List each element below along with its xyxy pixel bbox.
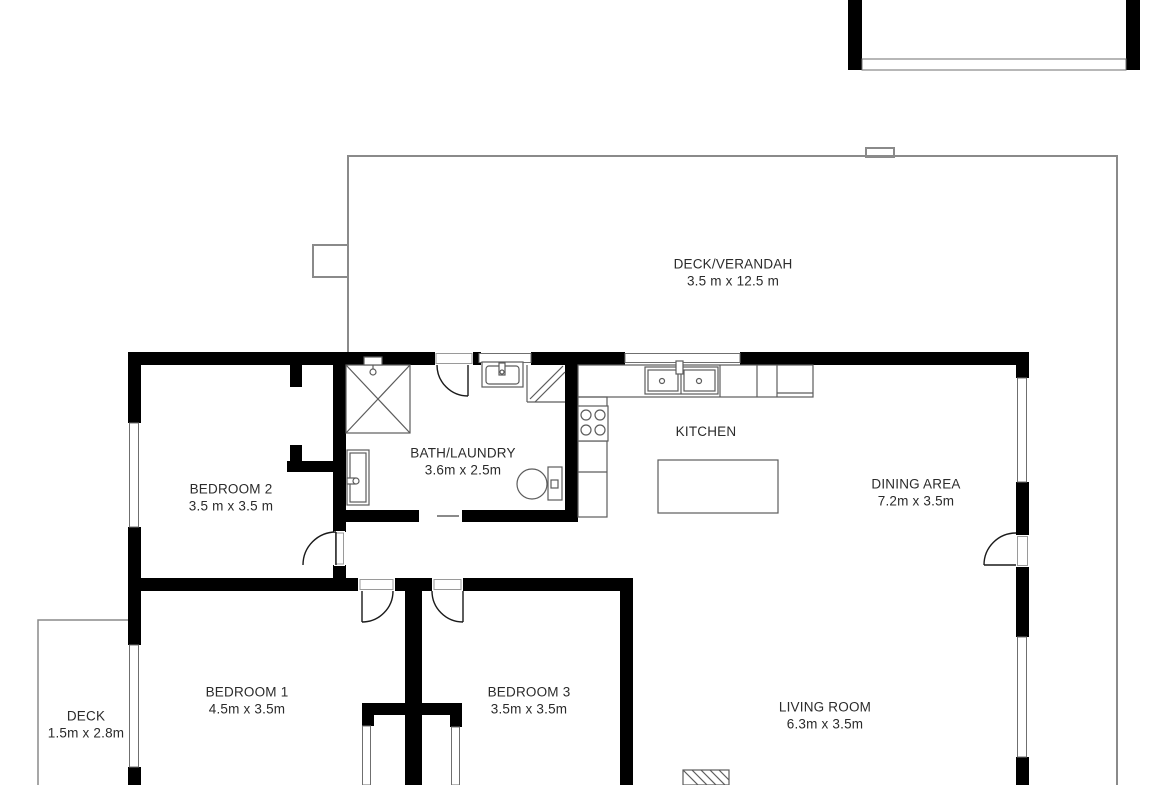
room-name: DECK (48, 709, 124, 726)
bath-entry-door (437, 365, 468, 396)
room-label-bedroom-1: BEDROOM 1 4.5m x 3.5m (206, 685, 289, 718)
room-label-kitchen: KITCHEN (676, 424, 737, 441)
room-dims: 3.5 m x 12.5 m (674, 273, 793, 290)
floor-plan-drawing (0, 0, 1170, 785)
dining-window (1018, 378, 1027, 482)
corner-unit (527, 365, 565, 402)
room-dims: 3.5m x 3.5m (488, 701, 571, 718)
room-name: BEDROOM 3 (488, 685, 571, 702)
bay-window-right (452, 727, 460, 785)
room-name: DINING AREA (871, 477, 960, 494)
verandah-post-box (313, 245, 348, 277)
garage-window (862, 59, 1126, 70)
bedroom1-window (130, 645, 139, 767)
bedroom2-door (303, 532, 336, 565)
room-dims: 1.5m x 2.8m (48, 725, 124, 742)
room-label-living: LIVING ROOM 6.3m x 3.5m (779, 700, 871, 733)
shower (346, 357, 410, 433)
bath-vanity (347, 450, 369, 505)
room-name: LIVING ROOM (779, 700, 871, 717)
deck-outline (38, 620, 128, 785)
room-label-deck-verandah: DECK/VERANDAH 3.5 m x 12.5 m (674, 257, 793, 290)
room-label-deck: DECK 1.5m x 2.8m (48, 709, 124, 742)
kitchen-island (658, 460, 778, 513)
hearth-hatch (683, 770, 729, 785)
dining-door (984, 533, 1016, 565)
bedroom2-window (130, 423, 139, 527)
room-dims: 3.6m x 2.5m (410, 462, 515, 479)
room-dims: 4.5m x 3.5m (206, 701, 289, 718)
bath-window (479, 354, 531, 363)
room-name: KITCHEN (676, 424, 737, 441)
room-name: DECK/VERANDAH (674, 257, 793, 274)
bath-basin (482, 362, 523, 387)
bedroom3-door (432, 591, 463, 622)
stove (578, 406, 608, 441)
bay-window-left (363, 726, 371, 785)
room-label-bedroom-3: BEDROOM 3 3.5m x 3.5m (488, 685, 571, 718)
room-label-bath-laundry: BATH/LAUNDRY 3.6m x 2.5m (410, 446, 515, 479)
bedroom1-door (362, 591, 393, 622)
living-window (1018, 637, 1027, 757)
room-dims: 7.2m x 3.5m (871, 493, 960, 510)
floor-plan: DECK/VERANDAH 3.5 m x 12.5 m BEDROOM 2 3… (0, 0, 1170, 785)
room-label-dining: DINING AREA 7.2m x 3.5m (871, 477, 960, 510)
room-name: BATH/LAUNDRY (410, 446, 515, 463)
room-label-bedroom-2: BEDROOM 2 3.5 m x 3.5 m (189, 482, 273, 515)
toilet (517, 467, 562, 500)
room-name: BEDROOM 2 (189, 482, 273, 499)
garage-walls (848, 0, 1140, 70)
room-name: BEDROOM 1 (206, 685, 289, 702)
kitchen-sink (645, 361, 718, 394)
room-dims: 3.5 m x 3.5 m (189, 498, 273, 515)
room-dims: 6.3m x 3.5m (779, 716, 871, 733)
